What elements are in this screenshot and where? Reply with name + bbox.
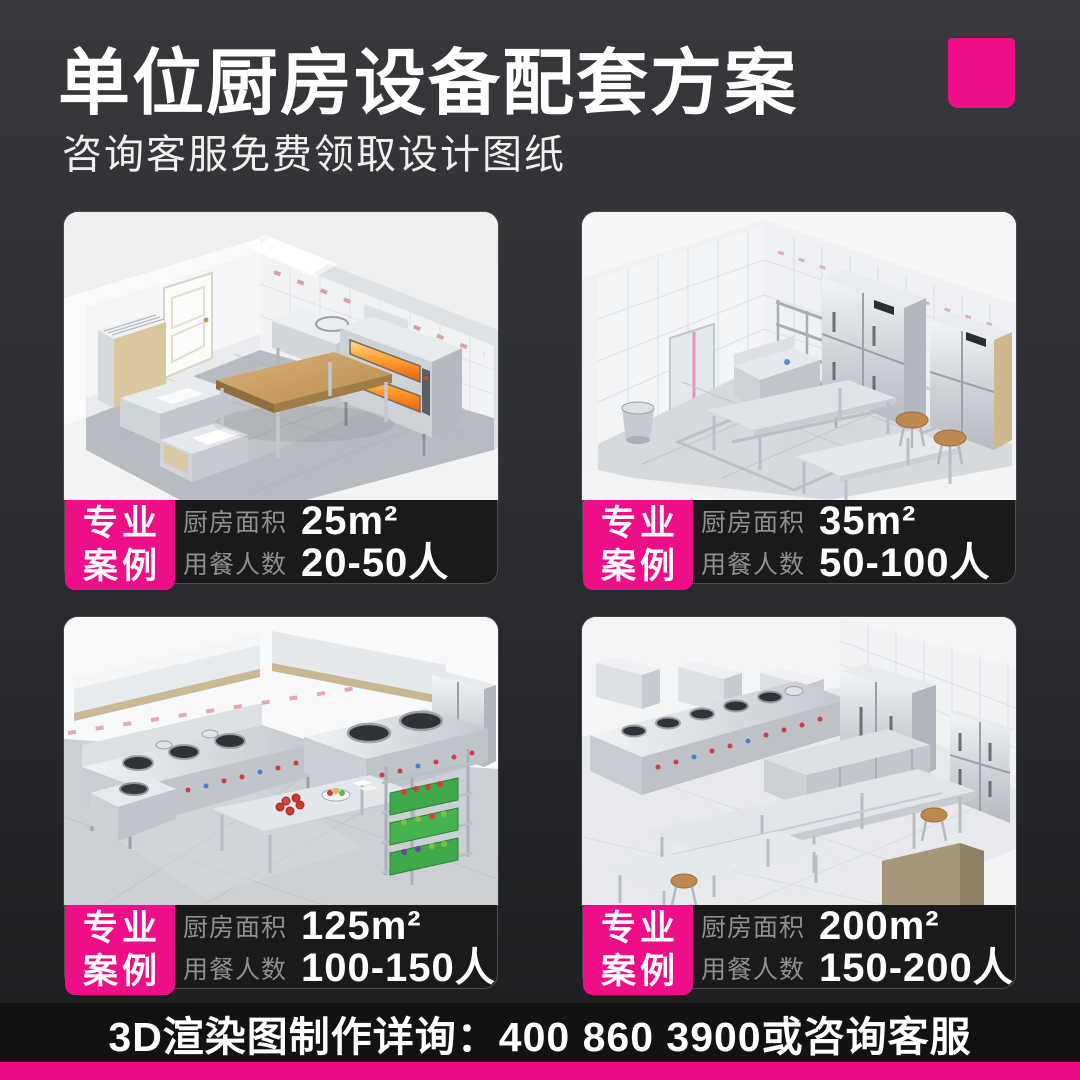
diners-label: 用餐人数: [701, 545, 805, 581]
page-subtitle: 咨询客服免费领取设计图纸: [62, 122, 566, 180]
area-value: 125m²: [301, 906, 422, 946]
badge-line1: 专业: [79, 502, 161, 545]
area-label: 厨房面积: [183, 908, 287, 944]
area-value: 200m²: [819, 906, 940, 946]
diners-value: 100-150人: [301, 948, 496, 988]
diners-label: 用餐人数: [183, 545, 287, 581]
diners-value: 20-50人: [301, 543, 449, 583]
promo-page: 单位厨房设备配套方案 咨询客服免费领取设计图纸: [0, 0, 1080, 1080]
diners-label: 用餐人数: [701, 950, 805, 986]
upright-fridge-right: [930, 312, 1012, 450]
badge-line2: 案例: [597, 545, 679, 588]
pro-case-badge: 专业 案例: [65, 500, 175, 590]
pro-case-badge: 专业 案例: [583, 905, 693, 995]
case-caption: 专业 案例 厨房面积 35m² 用餐人数 50-100人: [582, 500, 1016, 584]
pro-case-badge: 专业 案例: [583, 500, 693, 590]
diners-value: 50-100人: [819, 543, 991, 583]
badge-line1: 专业: [597, 502, 679, 545]
kitchen-render-125sqm: [64, 617, 498, 905]
badge-line2: 案例: [597, 950, 679, 993]
footer-accent-bar: [0, 1062, 1080, 1080]
case-card-125sqm: 专业 案例 厨房面积 125m² 用餐人数 100-150人: [64, 617, 498, 989]
badge-line1: 专业: [79, 907, 161, 950]
case-fields: 厨房面积 200m² 用餐人数 150-200人: [701, 906, 1014, 988]
diners-label: 用餐人数: [183, 950, 287, 986]
case-caption: 专业 案例 厨房面积 25m² 用餐人数 20-50人: [64, 500, 498, 584]
area-value: 25m²: [301, 501, 398, 541]
case-fields: 厨房面积 25m² 用餐人数 20-50人: [183, 501, 449, 583]
footer-hotline-text: 3D渲染图制作详询：400 860 3900或咨询客服: [108, 1003, 971, 1063]
case-grid: 专业 案例 厨房面积 25m² 用餐人数 20-50人: [64, 212, 1016, 989]
badge-line1: 专业: [597, 907, 679, 950]
area-label: 厨房面积: [183, 503, 287, 539]
case-card-25sqm: 专业 案例 厨房面积 25m² 用餐人数 20-50人: [64, 212, 498, 584]
kitchen-render-25sqm: [64, 212, 498, 500]
case-caption: 专业 案例 厨房面积 125m² 用餐人数 100-150人: [64, 905, 498, 989]
area-label: 厨房面积: [701, 908, 805, 944]
page-title: 单位厨房设备配套方案: [58, 24, 798, 129]
case-fields: 厨房面积 35m² 用餐人数 50-100人: [701, 501, 991, 583]
case-fields: 厨房面积 125m² 用餐人数 100-150人: [183, 906, 496, 988]
case-card-200sqm: 专业 案例 厨房面积 200m² 用餐人数 150-200人: [582, 617, 1016, 989]
footer-band: 3D渲染图制作详询：400 860 3900或咨询客服: [0, 1003, 1080, 1062]
case-card-35sqm: 专业 案例 厨房面积 35m² 用餐人数 50-100人: [582, 212, 1016, 584]
area-label: 厨房面积: [701, 503, 805, 539]
round-bin: [622, 402, 654, 444]
area-value: 35m²: [819, 501, 916, 541]
pro-case-badge: 专业 案例: [65, 905, 175, 995]
accent-square: [948, 38, 1015, 108]
badge-line2: 案例: [79, 950, 161, 993]
case-caption: 专业 案例 厨房面积 200m² 用餐人数 150-200人: [582, 905, 1016, 989]
kitchen-render-35sqm: [582, 212, 1016, 500]
kitchen-render-200sqm: [582, 617, 1016, 905]
diners-value: 150-200人: [819, 948, 1014, 988]
badge-line2: 案例: [79, 545, 161, 588]
